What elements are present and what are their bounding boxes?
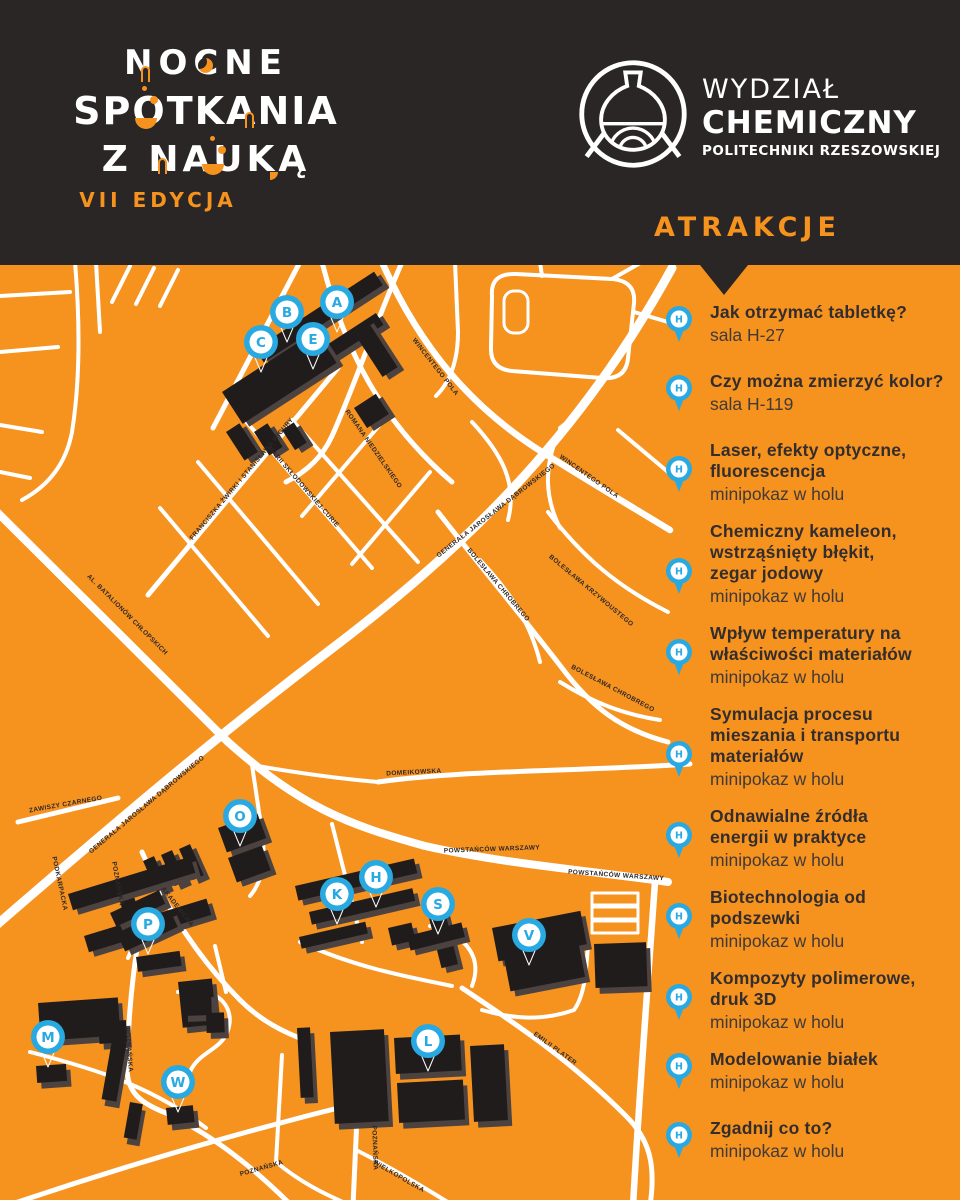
attraction-title: Odnawialne źródła energii w praktyce	[710, 806, 946, 848]
attraction-text: Modelowanie białek minipokaz w holu	[710, 1049, 946, 1103]
svg-text:M: M	[41, 1030, 54, 1046]
svg-text:V: V	[524, 928, 535, 944]
building-pin-icon: H	[662, 887, 710, 953]
attraction-item: H Wpływ temperatury na właściwości mater…	[662, 623, 946, 689]
logo-line-z-nauka: Z NAUKĄ	[70, 142, 342, 178]
svg-text:H: H	[675, 465, 683, 476]
attraction-item: H Biotechnologia od podszewki minipokaz …	[662, 887, 946, 953]
attraction-text: Biotechnologia od podszewki minipokaz w …	[710, 887, 946, 953]
svg-text:S: S	[433, 897, 443, 913]
attraction-location: minipokaz w holu	[710, 767, 946, 791]
attraction-item: H Czy można zmierzyć kolor? sala H-119	[662, 371, 946, 425]
street-label: GENERAŁA JAROSŁAWA DĄBROWSKIEGO	[88, 754, 206, 855]
map-markers: A B C E O P M W K H S V L	[31, 285, 546, 1112]
chemistry-faculty-flask-icon	[575, 56, 691, 172]
edition-label: VII EDYCJA	[22, 188, 294, 212]
attraction-text: Kompozyty polimerowe, druk 3D minipokaz …	[710, 968, 946, 1034]
street-label: GENERAŁA JAROSŁAWA DĄBROWSKIEGO	[435, 462, 556, 559]
attraction-text: Laser, efekty optyczne, fluorescencja mi…	[710, 440, 946, 506]
attraction-location: sala H-119	[710, 392, 946, 416]
attraction-location: minipokaz w holu	[710, 1010, 946, 1034]
attraction-item: H Odnawialne źródła energii w praktyce m…	[662, 806, 946, 872]
attraction-location: minipokaz w holu	[710, 665, 946, 689]
attractions-heading: ATRAKCJE	[654, 212, 841, 243]
svg-text:W: W	[171, 1075, 186, 1091]
event-logo: NOCNE SPOTKANIA Z NAUKĄ VII EDYCJA	[70, 46, 342, 212]
logo-line-spotkania: SPOTKANIA	[70, 92, 342, 130]
building-pin-icon: H	[662, 704, 710, 791]
building-pin-icon: H	[662, 968, 710, 1034]
attraction-location: minipokaz w holu	[710, 848, 946, 872]
attraction-text: Jak otrzymać tabletkę? sala H-27	[710, 302, 946, 356]
logo-line-nocne: NOCNE	[70, 46, 342, 80]
attraction-location: minipokaz w holu	[710, 584, 946, 608]
attraction-title: Symulacja procesu mieszania i transportu…	[710, 704, 946, 767]
svg-text:H: H	[675, 384, 683, 395]
attraction-text: Odnawialne źródła energii w praktyce min…	[710, 806, 946, 872]
attraction-location: minipokaz w holu	[710, 1070, 946, 1094]
svg-text:H: H	[675, 993, 683, 1004]
svg-text:A: A	[332, 295, 343, 311]
svg-text:E: E	[308, 332, 317, 348]
attractions-list: H Jak otrzymać tabletkę? sala H-27 H Czy…	[662, 302, 946, 1187]
faculty-name: WYDZIAŁ CHEMICZNY POLITECHNIKI RZESZOWSK…	[702, 76, 940, 159]
svg-text:H: H	[675, 315, 683, 326]
attraction-location: sala H-27	[710, 323, 946, 347]
map-marker-A: A	[320, 285, 354, 332]
attraction-title: Biotechnologia od podszewki	[710, 887, 946, 929]
svg-text:O: O	[234, 809, 245, 825]
attraction-item: H Symulacja procesu mieszania i transpor…	[662, 704, 946, 791]
building-pin-icon: H	[662, 302, 710, 356]
street-label: POWSTAŃCÓW WARSZAWY	[568, 867, 665, 883]
attraction-text: Czy można zmierzyć kolor? sala H-119	[710, 371, 946, 425]
faculty-line-3: POLITECHNIKI RZESZOWSKIEJ	[702, 145, 940, 159]
svg-text:C: C	[256, 335, 266, 351]
svg-text:H: H	[675, 567, 683, 578]
building-pin-icon: H	[662, 623, 710, 689]
svg-text:H: H	[675, 1131, 683, 1142]
attraction-title: Modelowanie białek	[710, 1049, 946, 1070]
attraction-text: Zgadnij co to? minipokaz w holu	[710, 1118, 946, 1172]
svg-text:H: H	[675, 750, 683, 761]
svg-text:H: H	[675, 648, 683, 659]
attraction-title: Zgadnij co to?	[710, 1118, 946, 1139]
attraction-location: minipokaz w holu	[710, 1139, 946, 1163]
street-label: BOLESŁAWA CHROBREGO	[465, 547, 530, 623]
attraction-item: H Laser, efekty optyczne, fluorescencja …	[662, 440, 946, 506]
building-pin-icon: H	[662, 806, 710, 872]
attraction-item: H Chemiczny kameleon, wstrząśnięty błęki…	[662, 521, 946, 608]
svg-text:H: H	[675, 912, 683, 923]
attraction-title: Laser, efekty optyczne, fluorescencja	[710, 440, 946, 482]
svg-text:P: P	[143, 917, 153, 933]
attraction-title: Chemiczny kameleon, wstrząśnięty błękit,…	[710, 521, 946, 584]
attraction-title: Wpływ temperatury na właściwości materia…	[710, 623, 946, 665]
attraction-item: H Modelowanie białek minipokaz w holu	[662, 1049, 946, 1103]
building-pin-icon: H	[662, 440, 710, 506]
map-marker-W: W	[161, 1065, 195, 1112]
faculty-line-2: CHEMICZNY	[702, 108, 940, 139]
attraction-item: H Kompozyty polimerowe, druk 3D minipoka…	[662, 968, 946, 1034]
attraction-title: Czy można zmierzyć kolor?	[710, 371, 946, 392]
attraction-title: Kompozyty polimerowe, druk 3D	[710, 968, 946, 1010]
attraction-location: minipokaz w holu	[710, 929, 946, 953]
building-pin-icon: H	[662, 1049, 710, 1103]
svg-text:B: B	[282, 305, 292, 321]
svg-text:H: H	[675, 1062, 683, 1073]
faculty-line-1: WYDZIAŁ	[702, 76, 940, 103]
svg-text:H: H	[675, 831, 683, 842]
building-pin-icon: H	[662, 371, 710, 425]
attraction-text: Wpływ temperatury na właściwości materia…	[710, 623, 946, 689]
street-label: WINCENTEGO POLA	[558, 454, 620, 500]
svg-text:K: K	[332, 887, 343, 903]
svg-text:L: L	[424, 1034, 433, 1050]
street-label: POWSTAŃCÓW WARSZAWY	[444, 842, 541, 854]
attraction-location: minipokaz w holu	[710, 482, 946, 506]
building-pin-icon: H	[662, 521, 710, 608]
street-label: WIELKOPOLSKA	[372, 1159, 426, 1194]
attraction-item: H Jak otrzymać tabletkę? sala H-27	[662, 302, 946, 356]
attraction-title: Jak otrzymać tabletkę?	[710, 302, 946, 323]
attraction-item: H Zgadnij co to? minipokaz w holu	[662, 1118, 946, 1172]
attraction-text: Symulacja procesu mieszania i transportu…	[710, 704, 946, 791]
header: NOCNE SPOTKANIA Z NAUKĄ VII EDYCJA WYDZI…	[0, 0, 960, 265]
svg-text:H: H	[370, 870, 381, 886]
street-label: BOLESŁAWA KRZYWOUSTEGO	[547, 553, 634, 628]
attraction-text: Chemiczny kameleon, wstrząśnięty błękit,…	[710, 521, 946, 608]
street-label: EMILII PLATER	[532, 1031, 578, 1067]
building-pin-icon: H	[662, 1118, 710, 1172]
